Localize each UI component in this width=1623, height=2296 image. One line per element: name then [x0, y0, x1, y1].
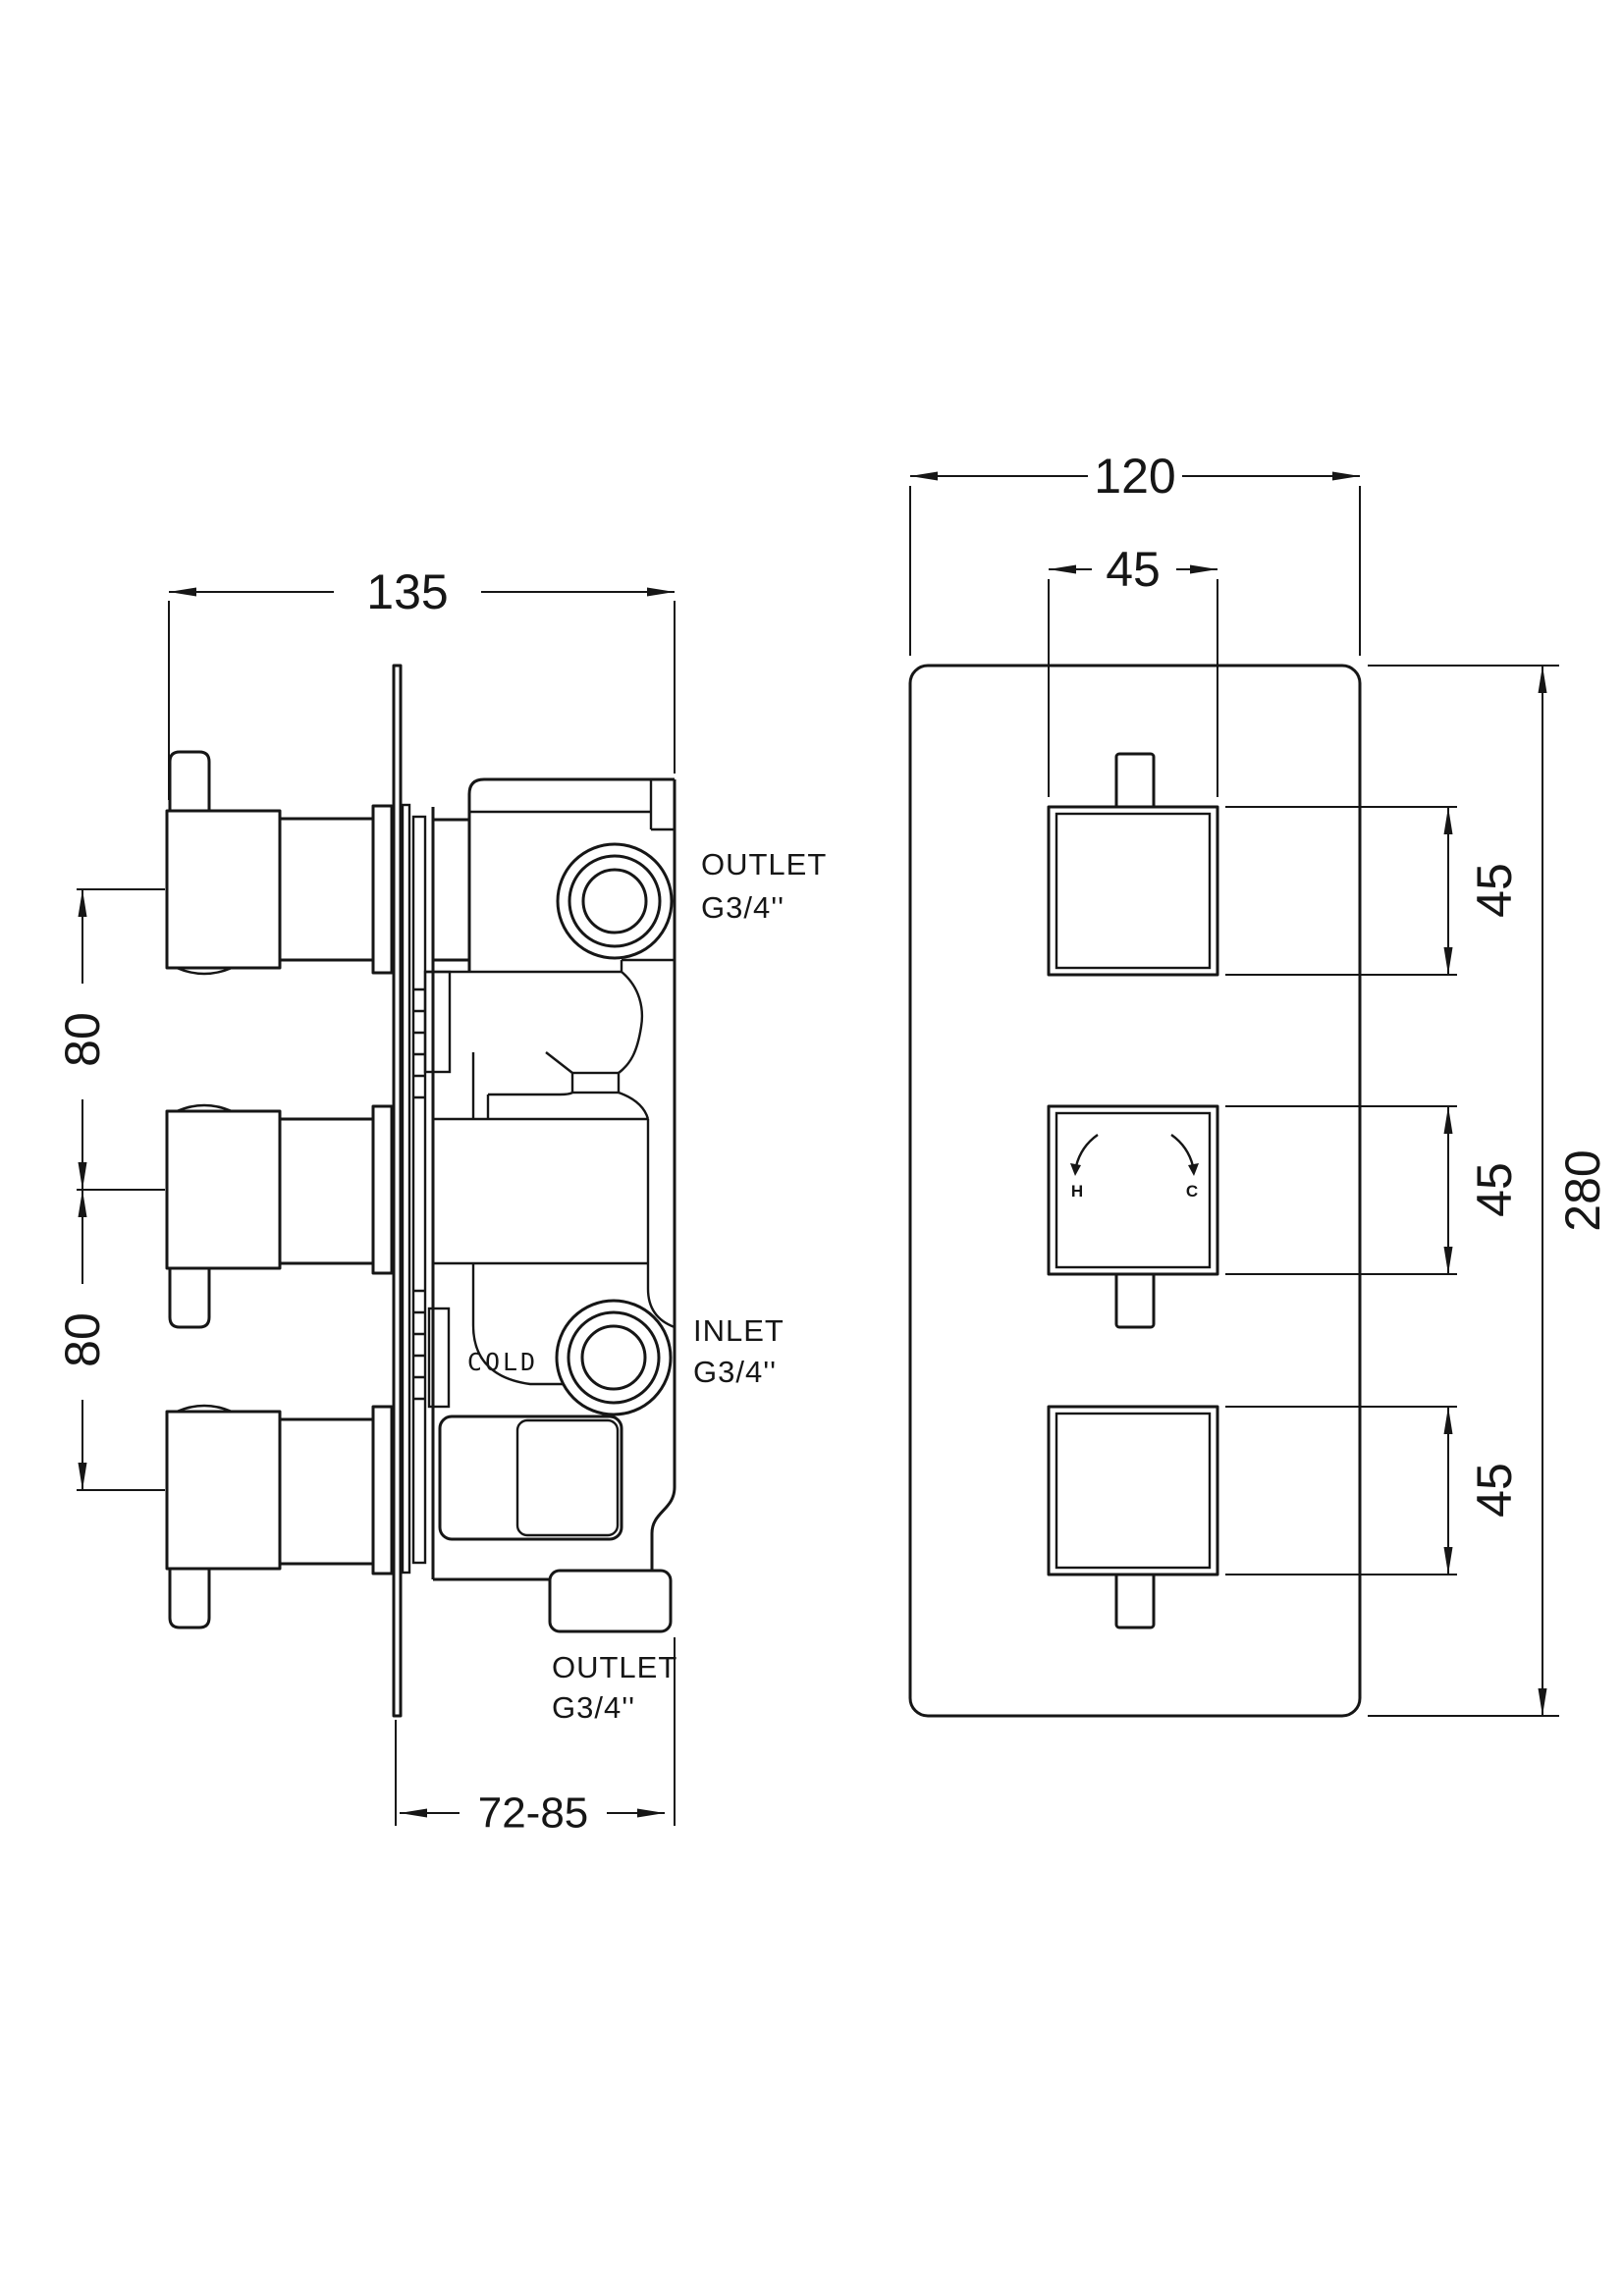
- handle-top-escutcheon: [373, 806, 392, 973]
- body-spacer-block-upper: [425, 972, 450, 1072]
- dimension-45-top-text: 45: [1467, 863, 1522, 918]
- inlet-port-circle: [557, 1301, 671, 1415]
- middle-cartridge-lines: [433, 1119, 675, 1327]
- handle-bottom-escutcheon: [373, 1407, 392, 1574]
- handle-bottom-side: [167, 1406, 392, 1628]
- handle-top-side: [167, 752, 392, 974]
- handle-top-front: [1049, 754, 1217, 975]
- handle-top-body: [167, 811, 280, 968]
- valve-body: COLD: [425, 779, 675, 1631]
- dimension-80-top: 80: [55, 889, 165, 1190]
- wall-plate-side: [394, 666, 401, 1716]
- dimension-45-bottom: 45: [1225, 1407, 1522, 1575]
- cold-marking: COLD: [467, 1348, 538, 1376]
- handle-bottom-front-outer: [1049, 1407, 1217, 1575]
- dimension-45-bottom-extension-lines: [1225, 1407, 1457, 1575]
- dimension-45-top: 45: [1225, 807, 1522, 975]
- handle-middle-front: H C: [1049, 1106, 1217, 1327]
- thread-rungs-lower: [413, 1291, 425, 1399]
- shower-valve-technical-drawing: COLD: [0, 0, 1623, 2296]
- dimension-280-text: 280: [1555, 1149, 1610, 1231]
- body-top-cap-lines: [469, 779, 675, 829]
- dimension-45-middle: 45: [1225, 1106, 1522, 1274]
- technical-drawing-page: COLD: [0, 0, 1623, 2296]
- dimension-45-middle-extension-lines: [1225, 1106, 1457, 1274]
- top-cartridge-lines: [433, 820, 469, 960]
- handle-bottom-front: [1049, 1407, 1217, 1628]
- handle-top-front-tab: [1116, 754, 1154, 811]
- threaded-strip: [413, 817, 425, 1563]
- handle-middle-side: [167, 1105, 392, 1327]
- dimension-135: 135: [169, 564, 675, 800]
- backing-plate-strip: [403, 805, 409, 1573]
- dimension-45-middle-text: 45: [1467, 1162, 1522, 1217]
- dimension-80-bottom-text: 80: [55, 1312, 110, 1367]
- dimension-45-top-extension-lines: [1225, 807, 1457, 975]
- handle-middle-lever-tab: [170, 1268, 209, 1327]
- dimension-280-extension-lines: [1368, 666, 1559, 1716]
- outlet-top-label-line1: OUTLET: [701, 847, 827, 881]
- bottom-outlet-port: [550, 1571, 671, 1631]
- bottom-cartridge-inner: [517, 1420, 618, 1535]
- dimension-120-text: 120: [1094, 449, 1175, 504]
- thread-rungs-upper: [413, 989, 425, 1097]
- dimension-72-85-text: 72-85: [478, 1789, 589, 1838]
- handle-middle-body: [167, 1111, 280, 1268]
- body-neck: [572, 1073, 619, 1093]
- dimension-45-width-text: 45: [1106, 542, 1161, 597]
- dimension-45-bottom-text: 45: [1467, 1463, 1522, 1518]
- body-bulge-curve: [619, 972, 642, 1073]
- handle-bottom-stem: [280, 1419, 373, 1564]
- handle-top-front-outer: [1049, 807, 1217, 975]
- bottom-cartridge-outer: [440, 1416, 622, 1539]
- handle-middle-stem: [280, 1119, 373, 1263]
- outlet-port-circle: [558, 844, 672, 958]
- handle-top-stem: [280, 819, 373, 960]
- handle-bottom-lever-tab: [170, 1569, 209, 1628]
- front-view: H C 120 45 45: [910, 449, 1610, 1716]
- handle-middle-escutcheon: [373, 1106, 392, 1273]
- dimension-135-text: 135: [366, 564, 448, 619]
- inlet-label-line1: INLET: [693, 1313, 784, 1348]
- dimension-80-top-text: 80: [55, 1012, 110, 1067]
- outlet-top-label-line2: G3/4'': [701, 890, 784, 925]
- inlet-label-line2: G3/4'': [693, 1355, 777, 1389]
- outlet-bottom-label-line1: OUTLET: [552, 1650, 677, 1684]
- dimension-135-extension-lines: [169, 601, 675, 800]
- handle-bottom-body: [167, 1412, 280, 1569]
- handle-top-lever-tab: [170, 752, 209, 811]
- dimension-80-bottom: 80: [55, 1190, 165, 1490]
- body-funnel-upper: [473, 1052, 648, 1119]
- cold-marking-front: C: [1186, 1182, 1198, 1201]
- body-mid-shelf: [425, 960, 675, 972]
- hot-marking: H: [1071, 1182, 1083, 1201]
- handle-middle-front-tab: [1116, 1270, 1154, 1327]
- outlet-bottom-label-line2: G3/4'': [552, 1690, 635, 1725]
- handle-bottom-front-tab: [1116, 1571, 1154, 1628]
- side-view: COLD: [55, 564, 827, 1838]
